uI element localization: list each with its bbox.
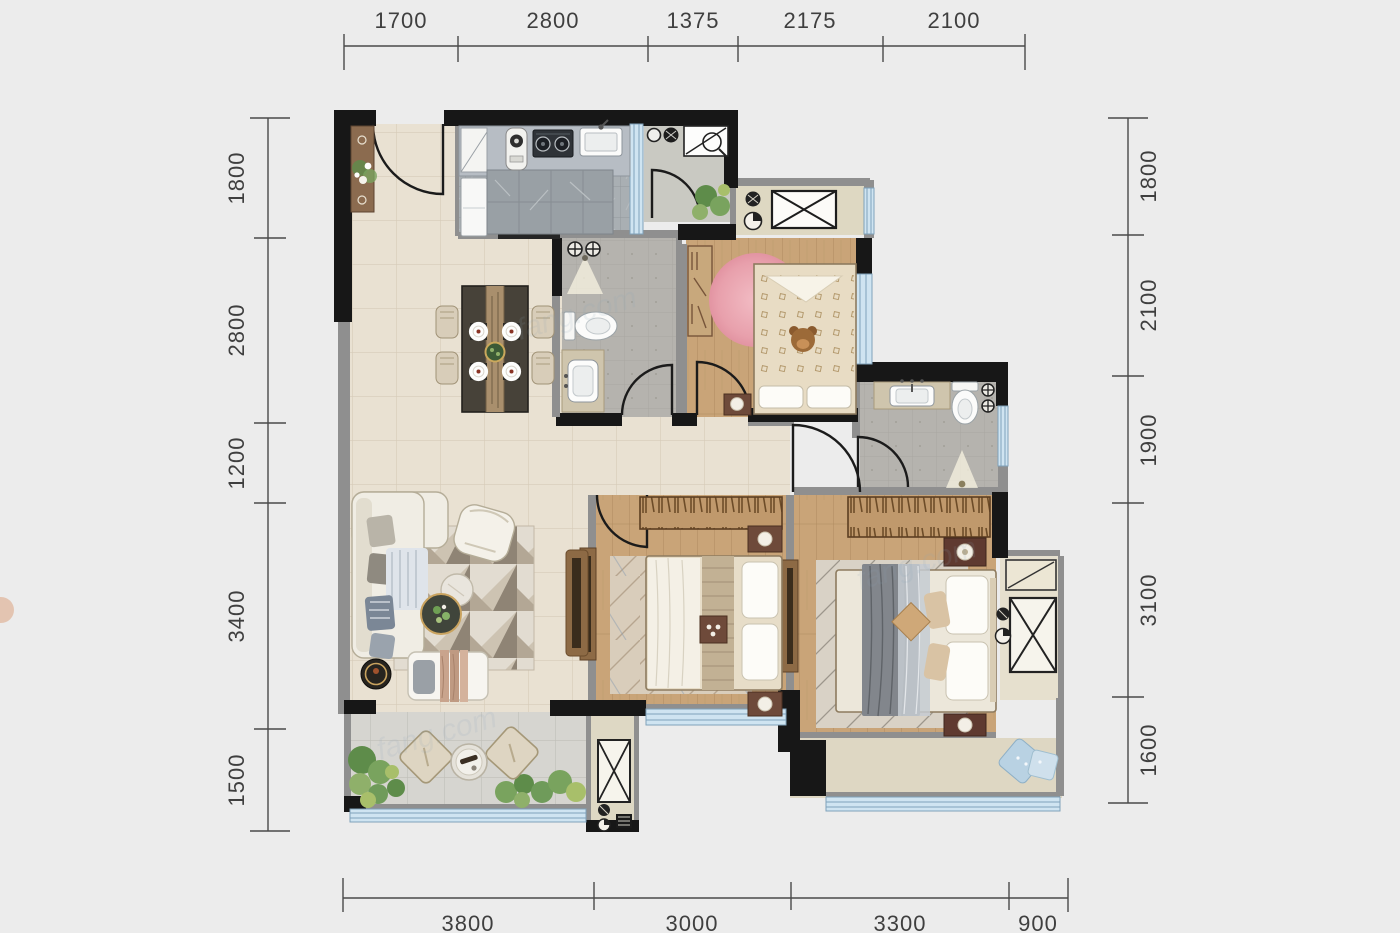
bathroom-vanity	[562, 350, 604, 412]
floor-drain-pie-icon	[745, 213, 762, 230]
dimension-label: 3800	[442, 911, 495, 933]
faucet-cross-icon	[982, 384, 994, 396]
dining-chair	[436, 352, 458, 384]
dimension-label: 2800	[527, 8, 580, 33]
dimension-label: 1375	[667, 8, 720, 33]
ac-unit-icon	[1010, 598, 1056, 672]
dimension-label: 1800	[1136, 150, 1161, 203]
dimension-label: 2100	[928, 8, 981, 33]
faucet-cross-icon	[982, 400, 994, 412]
kids-nightstand	[724, 394, 751, 415]
nightstand	[748, 692, 782, 716]
tv-bench	[408, 650, 488, 702]
middle-bedroom-bookshelf	[640, 497, 782, 529]
dimension-label: 3300	[874, 911, 927, 933]
dimension-label: 900	[1018, 911, 1058, 933]
balcony-table	[451, 744, 487, 780]
place-setting	[469, 362, 488, 381]
dimension-label: 2175	[784, 8, 837, 33]
dimension-bottom	[343, 878, 1068, 912]
side-table	[361, 659, 391, 689]
centerpiece-plant-icon	[486, 343, 505, 362]
entry-area	[351, 126, 377, 212]
dimension-top	[344, 34, 1025, 70]
utility-balcony-window	[864, 188, 874, 234]
edge-logo-fragment	[0, 597, 14, 623]
bed-pillow	[946, 642, 988, 700]
floor-plan-page: 1700 2800 1375 2175 2100 3800 3000 3300 …	[0, 0, 1400, 933]
dining-chair	[436, 306, 458, 338]
bench-drape	[440, 650, 449, 702]
balcony-cushion	[1027, 749, 1059, 781]
pantry-hob-icon	[648, 129, 661, 142]
kids-pillow	[807, 386, 851, 408]
ac-louver-panel	[1006, 560, 1056, 590]
floor-plan-drawing: 1700 2800 1375 2175 2100 3800 3000 3300 …	[0, 0, 1400, 933]
sofa-pillow	[368, 632, 395, 659]
kitchen-fridge	[461, 178, 487, 236]
dimension-label: 1200	[224, 437, 249, 490]
water-heater-icon	[506, 128, 527, 170]
dimension-right-labels: 1800 2100 1900 3100 1600	[1136, 150, 1161, 777]
dimension-label: 3400	[224, 590, 249, 643]
bed-pillow	[742, 562, 778, 618]
dimension-label: 3000	[666, 911, 719, 933]
dimension-bottom-labels: 3800 3000 3300 900	[442, 911, 1058, 933]
floor-drain-pie-icon	[598, 819, 610, 831]
sofa-pillow	[366, 514, 396, 547]
dimension-label: 2100	[1136, 279, 1161, 332]
place-setting	[502, 362, 521, 381]
coffee-table-plant	[421, 594, 461, 634]
ensuite-vanity	[874, 379, 950, 409]
dining-table	[462, 286, 528, 412]
pantry-appliance-icon	[684, 126, 728, 156]
dimension-label: 1700	[375, 8, 428, 33]
accent-pillow	[700, 616, 727, 643]
dimension-left	[250, 118, 290, 831]
kitchen	[459, 120, 630, 236]
equipment-box-icon	[598, 740, 630, 802]
dimension-label: 3100	[1136, 574, 1161, 627]
kids-pillow	[759, 386, 803, 408]
stove-icon	[533, 130, 573, 157]
nightstand	[748, 526, 782, 552]
kids-wardrobe	[688, 246, 712, 336]
kitchen-pantry-glass-window	[630, 124, 643, 234]
living-balcony-window	[350, 809, 586, 822]
dimension-top-labels: 1700 2800 1375 2175 2100	[375, 8, 981, 33]
dimension-left-labels: 1800 2800 1200 3400 1500	[224, 152, 249, 807]
dining-chair	[532, 352, 554, 384]
faucet-cross-icon	[568, 242, 582, 256]
washing-machine-icon	[772, 191, 836, 228]
ensuite-toilet-icon	[952, 382, 978, 424]
master-balcony-window	[826, 797, 1060, 811]
dimension-label: 1900	[1136, 414, 1161, 467]
bench-drape	[460, 650, 468, 702]
dimension-label: 1800	[224, 152, 249, 205]
kids-bed	[754, 264, 856, 414]
tv-wall-panel	[566, 550, 588, 656]
ensuite-window	[998, 406, 1008, 466]
bed-pillow	[742, 624, 778, 680]
faucet-cross-icon	[586, 242, 600, 256]
master-bedroom-side-window-frame	[782, 560, 798, 672]
nightstand	[944, 714, 986, 736]
master-bedroom-door-arc	[793, 425, 860, 492]
place-setting	[469, 322, 488, 341]
middle-bedroom-bed	[646, 556, 782, 690]
dimension-label: 1500	[224, 754, 249, 807]
sofa-pillow	[365, 595, 396, 631]
dimension-label: 2800	[224, 304, 249, 357]
dimension-label: 1600	[1136, 724, 1161, 777]
bed-pillow	[946, 576, 988, 634]
floor-drain-pie-icon	[996, 629, 1011, 644]
